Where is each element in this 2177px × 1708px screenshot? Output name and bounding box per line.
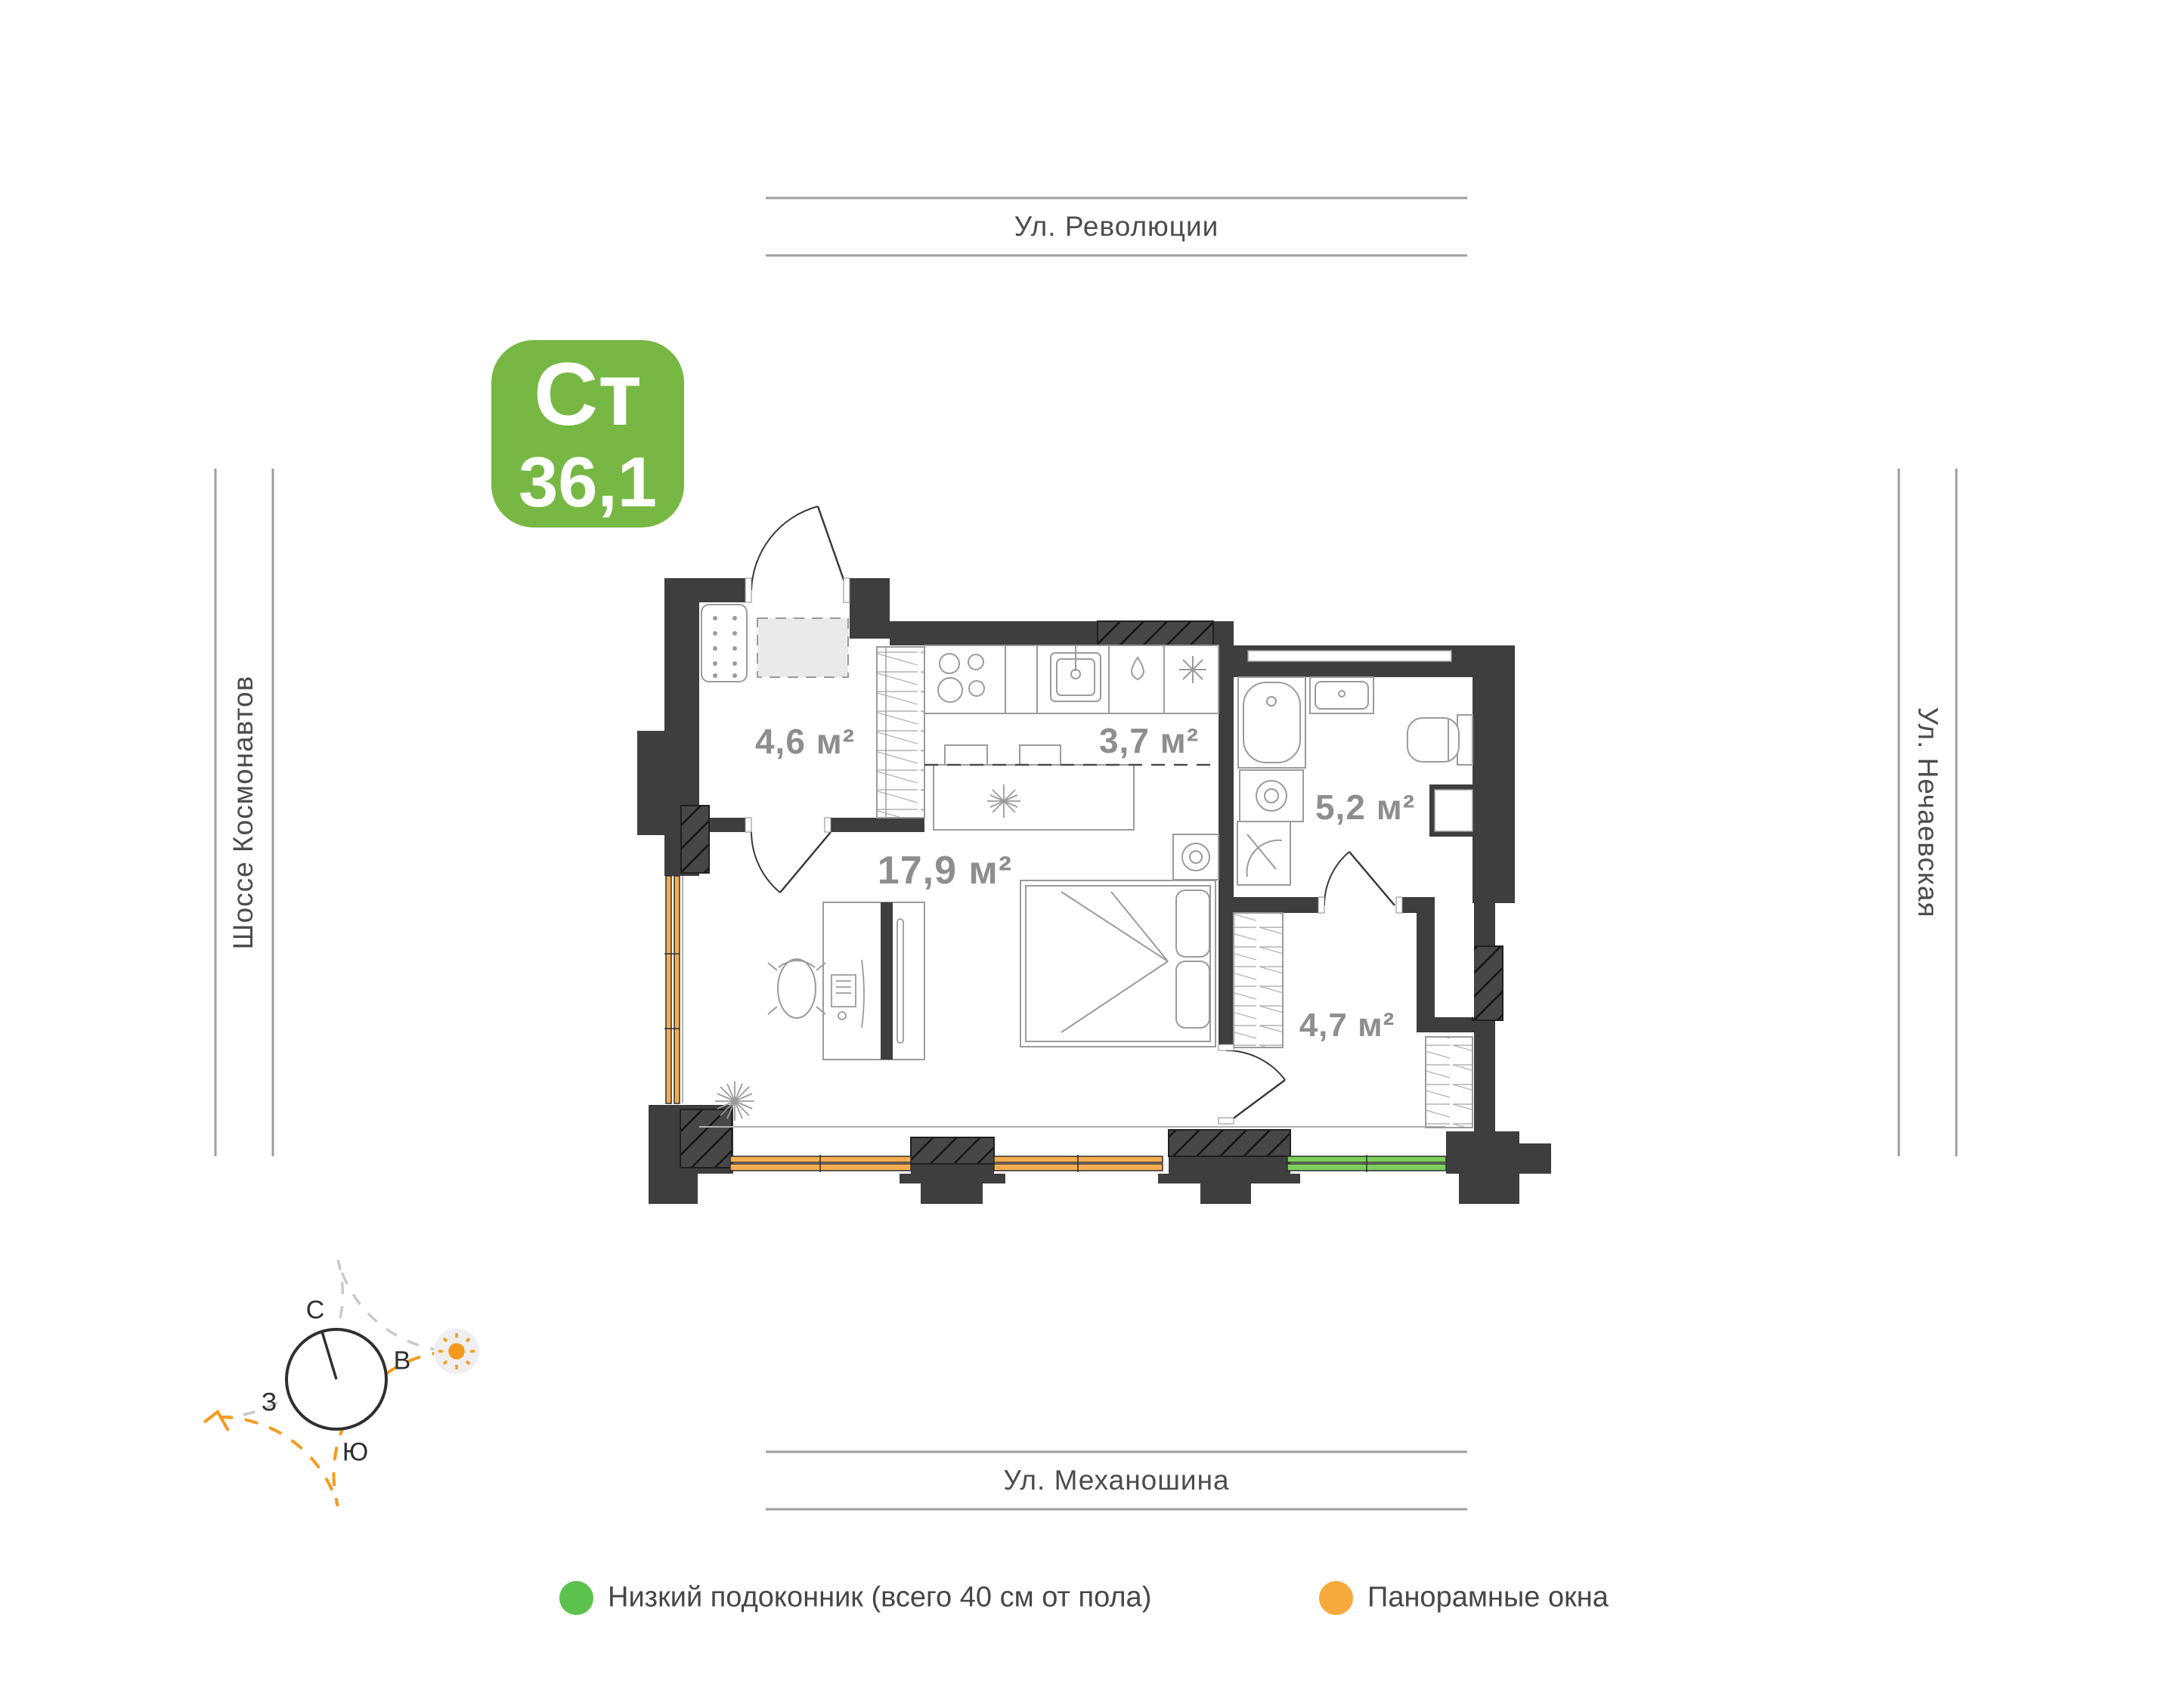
office-chair-icon — [768, 959, 825, 1018]
dressing-door — [1226, 1050, 1285, 1124]
kitchen-counter — [924, 645, 1219, 713]
fridge-snowflake-icon — [1179, 656, 1206, 683]
bar-stools — [945, 745, 1061, 765]
bathroom-sink — [1310, 677, 1373, 713]
hallway-closet — [877, 647, 924, 818]
street-label-top: Ул. Революции — [1014, 211, 1219, 243]
shower-drain-unit — [1237, 822, 1290, 885]
bathroom-door — [1324, 852, 1395, 905]
kitchen-island — [934, 765, 1134, 830]
street-label-left: Шоссе Космонавтов — [228, 676, 259, 950]
compass-west-label: З — [262, 1388, 277, 1418]
legend-dot-low-sill — [559, 1581, 593, 1615]
dressing-wardrobe-right — [1426, 1037, 1472, 1128]
street-label-bottom: Ул. Механошина — [1003, 1465, 1229, 1496]
legend-label-panoramic: Панорамные окна — [1367, 1582, 1609, 1614]
hallway-room-door — [751, 832, 831, 893]
bed — [1020, 880, 1215, 1047]
room-label-hallway: 4,6 м² — [755, 721, 855, 762]
bathtub — [1238, 677, 1305, 768]
washing-machine — [1240, 770, 1303, 822]
compass-south-label: Ю — [342, 1438, 368, 1468]
legend-label-low-sill: Низкий подоконник (всего 40 см от пола) — [608, 1582, 1151, 1614]
shoe-rack — [701, 605, 747, 682]
room-label-living-room: 17,9 м² — [878, 848, 1012, 893]
dressing-wardrobe-left — [1234, 913, 1283, 1047]
room-label-kitchen: 3,7 м² — [1099, 720, 1199, 761]
compass-arrow — [204, 1412, 228, 1431]
entrance-door — [751, 506, 847, 590]
apartment-type-badge: Ст 36,1 — [491, 340, 684, 528]
apartment-area-value: 36,1 — [519, 447, 657, 518]
low-sill-window-green — [1287, 1155, 1446, 1172]
street-label-right: Ул. Нечаевская — [1912, 707, 1943, 917]
hallway-cabinet — [757, 618, 848, 677]
panoramic-window-bottom-1 — [730, 1155, 911, 1172]
compass — [204, 1260, 479, 1506]
room-label-dressing: 4,7 м² — [1299, 1007, 1395, 1044]
floor-plant-icon — [715, 1081, 754, 1121]
panoramic-window-bottom-2 — [994, 1155, 1163, 1172]
floorplan-page: Ул. Революции Ул. Механошина Шоссе Космо… — [0, 0, 2177, 1708]
floorplan-drawing — [0, 0, 2177, 1708]
toilet — [1407, 715, 1472, 765]
room-label-bathroom: 5,2 м² — [1315, 787, 1415, 828]
compass-east-label: В — [394, 1347, 411, 1376]
panoramic-window-left — [664, 876, 680, 1103]
legend-dot-panoramic — [1319, 1581, 1353, 1615]
street-lines — [215, 198, 1956, 1509]
apartment-type-label: Ст — [534, 350, 642, 439]
compass-north-label: С — [306, 1296, 325, 1326]
bedside-stool — [1173, 834, 1219, 880]
